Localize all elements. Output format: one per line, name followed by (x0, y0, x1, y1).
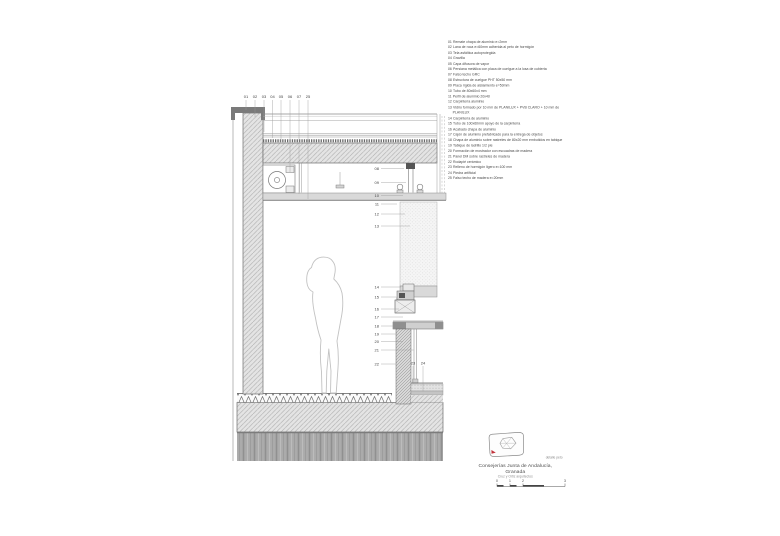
callout-label: 17 (375, 315, 380, 320)
callout-label: 04 (270, 94, 275, 99)
titleblock-logo (489, 432, 524, 457)
scale-label: 1 (509, 479, 511, 483)
legend-item-number: 08 (448, 79, 452, 82)
legend-item-text: Tabique de ladrillo 1/2 pie (453, 144, 492, 147)
floor-slab (237, 403, 443, 433)
legend-item-number: 12 (448, 101, 452, 104)
callout-label: 19 (375, 332, 380, 337)
callout-label: 13 (375, 224, 380, 229)
brick-partition (396, 329, 411, 404)
callout-label: 08 (375, 166, 380, 171)
legend-item-text: Falso techo GRC (453, 73, 480, 76)
legend-item-number: 24 (448, 172, 452, 175)
callout-label: 23 (411, 361, 416, 366)
callout-label: 09 (375, 180, 380, 185)
legend-item-number: 09 (448, 84, 452, 87)
callout-label: 25 (306, 94, 311, 99)
legend-item-number: 17 (448, 133, 452, 136)
artificial-stone (411, 391, 443, 395)
legend-item-number: 20 (448, 150, 452, 153)
ceiling-hangers (300, 163, 345, 193)
scale-bar: 0 1 2 3 (496, 479, 566, 487)
architectural-section-sheet: 01 02 03 04 05 06 07 25 08 09 10 11 12 1… (0, 0, 780, 536)
callout-label: 20 (375, 339, 380, 344)
legend-item-text: Vidrio formado por 10 mm de PLANILUX + P… (453, 106, 560, 115)
roof-slab (263, 143, 437, 163)
legend-item-text: Lana de roca e=60mm adherida al peto de … (453, 46, 534, 49)
roller-blind-box (263, 165, 295, 193)
scale-label: 3 (564, 479, 566, 483)
legend-item-text: Estructura de cuelgue PHT 50x50 mm (453, 79, 512, 82)
legend-item-number: 22 (448, 161, 452, 164)
legend-item-text: Cajón de aluminio prefabricado para la e… (453, 133, 543, 136)
callout-label: 01 (244, 94, 249, 99)
legend-item-number: 10 (448, 90, 452, 93)
legend-item-text: Acabado chapa de aluminio (453, 128, 496, 131)
ceiling-plenum (263, 163, 446, 201)
legend-item-text: Tubo de 100x60mm apoyo de la carpintería (453, 122, 520, 125)
callout-label: 12 (375, 212, 380, 217)
legend-item: 13Vidrio formado por 10 mm de PLANILUX +… (448, 105, 565, 116)
legend-item-number: 15 (448, 122, 452, 125)
legend-item-number: 23 (448, 166, 452, 169)
counter-assembly (393, 321, 443, 404)
light-concrete-fill (411, 384, 443, 391)
callout-label: 05 (279, 94, 284, 99)
legend-item-text: Gravilla (453, 57, 465, 60)
legend-item-number: 18 (448, 139, 452, 142)
callout-label: 18 (375, 324, 380, 329)
legend-item-number: 14 (448, 117, 452, 120)
legend-item-text: Placa rígida de aislamiento e=50mm (453, 84, 509, 87)
human-figure (307, 257, 343, 393)
blind-elevation-panel (400, 202, 437, 286)
legend-item-number: 03 (448, 51, 452, 54)
scale-label: 2 (522, 479, 524, 483)
callout-label: 03 (262, 94, 267, 99)
legend-item-text: Carpintería de aluminio (453, 117, 489, 120)
legend-item-text: Falso techo de madera e=20mm (453, 177, 503, 180)
callout-label: 16 (375, 307, 380, 312)
callout-label: 14 (375, 285, 380, 290)
legend-item-number: 02 (448, 46, 452, 49)
concrete-parapet-column (243, 113, 263, 394)
section-drawing: 01 02 03 04 05 06 07 25 08 09 10 11 12 1… (0, 0, 780, 536)
callout-label: 11 (375, 202, 380, 207)
callout-label: 24 (421, 361, 426, 366)
glazing-sill-frame (395, 284, 415, 313)
callout-label: 15 (375, 295, 380, 300)
floor-assembly (237, 393, 443, 461)
legend-item-text: Capa difusora de vapor (453, 62, 489, 65)
callout-label: 06 (288, 94, 293, 99)
legend-item-number: 25 (448, 177, 452, 180)
drawing-caption: detalle peto (468, 456, 563, 459)
legend-item-text: Persiana metálica con placa de cuelgue a… (453, 68, 547, 71)
scale-label: 0 (496, 479, 498, 483)
legend-item-number: 06 (448, 68, 452, 71)
legend-item-number: 07 (448, 73, 452, 76)
callout-label: 10 (375, 193, 380, 198)
legend-item-text: Carpintería aluminio (453, 101, 484, 104)
callout-label: 02 (253, 94, 258, 99)
skirting (413, 379, 419, 383)
legend-item-number: 19 (448, 144, 452, 147)
legend-item-text: Formación de mostrador con escuadras de … (453, 150, 532, 153)
architect-name: Cruz y Ortiz arquitectos (468, 475, 563, 478)
floor-screed (237, 394, 392, 403)
legend-item-text: Remate chapa de aluminio e=2mm (453, 41, 507, 44)
legend-item-text: Tubo de 80x60x4 mm (453, 90, 487, 93)
legend: 01Remate chapa de aluminio e=2mm02Lana d… (448, 40, 564, 182)
exterior-floor-layers (411, 383, 443, 403)
callout-label: 21 (375, 348, 380, 353)
callout-label: 07 (297, 94, 302, 99)
callout-label: 22 (375, 362, 380, 367)
legend-item-text: Tela asfáltica autoprotegida (453, 51, 495, 54)
legend-item-number: 21 (448, 155, 452, 158)
legend-item-text: Panel DM sobre rastreles de madera (453, 155, 510, 158)
legend-item-number: 13 (448, 106, 452, 109)
legend-item-number: 04 (448, 57, 452, 60)
legend-item: 25Falso techo de madera e=20mm (448, 176, 565, 181)
legend-item-number: 16 (448, 128, 452, 131)
legend-item-number: 11 (448, 95, 452, 98)
titleblock: detalle peto Consejerías Junta de Andalu… (468, 456, 563, 478)
roof-fascia (437, 114, 445, 200)
legend-item-text: Perfil de aluminio 20x40 (453, 95, 490, 98)
legend-item-text: Piedra artificial (453, 172, 476, 175)
ground-band (237, 433, 443, 461)
legend-item-number: 05 (448, 62, 452, 65)
legend-item-number: 01 (448, 41, 452, 44)
glazing-head-assembly (397, 163, 423, 193)
suspended-ceiling-band (263, 193, 446, 200)
glazing (395, 202, 437, 313)
legend-item-text: Chapa de aluminio sobre rastreles de 80x… (453, 139, 562, 142)
legend-item-text: Relleno de hormigón ligero e=100 mm (453, 166, 512, 169)
project-title: Consejerías Junta de Andalucía, Granada (468, 462, 563, 474)
legend-item-text: Rodapié cerámico (453, 161, 481, 164)
